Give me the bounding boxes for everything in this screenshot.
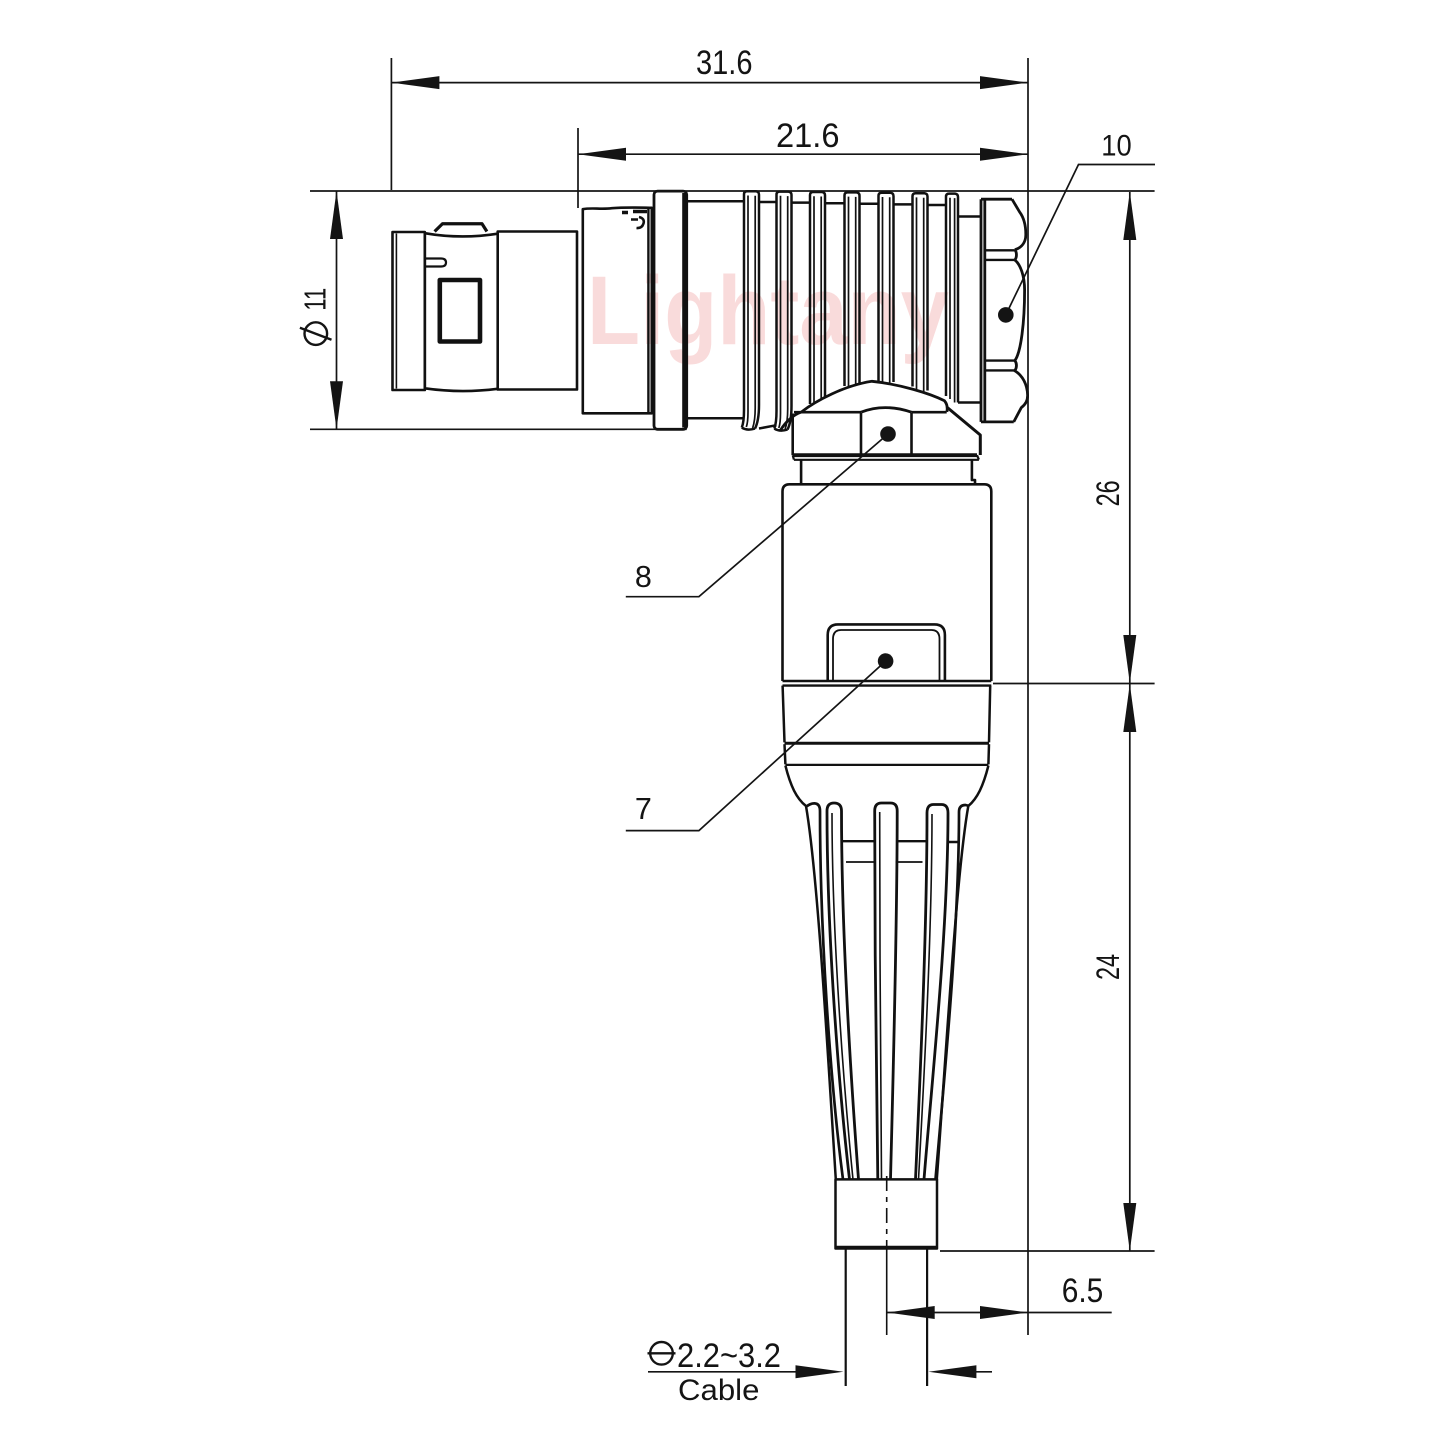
svg-text:2.2~3.2: 2.2~3.2 bbox=[677, 1337, 781, 1375]
svg-text:8: 8 bbox=[635, 560, 652, 594]
svg-text:6.5: 6.5 bbox=[1062, 1272, 1104, 1310]
svg-text:7: 7 bbox=[635, 792, 652, 826]
svg-text:26: 26 bbox=[1090, 480, 1126, 506]
svg-text:24: 24 bbox=[1090, 954, 1126, 980]
svg-text:10: 10 bbox=[1101, 129, 1131, 162]
svg-text:Cable: Cable bbox=[678, 1374, 759, 1407]
svg-text:11: 11 bbox=[299, 288, 333, 311]
svg-text:31.6: 31.6 bbox=[696, 44, 753, 82]
svg-text:21.6: 21.6 bbox=[776, 117, 840, 155]
